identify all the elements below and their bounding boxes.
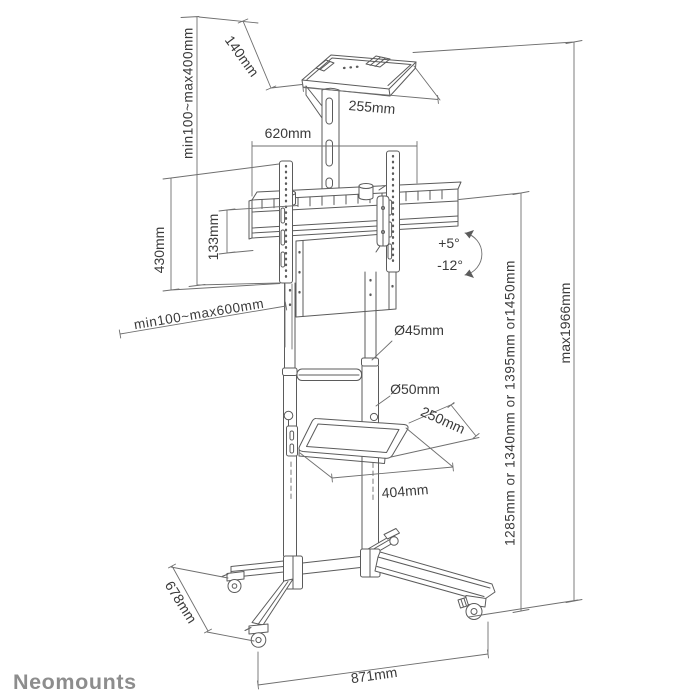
diagram-canvas: min100~max400mm 140mm 255mm 620mm 430mm … [0, 0, 700, 700]
dim-camera-shelf-height-range [181, 17, 280, 287]
label-tilt-up: +5° [438, 235, 460, 251]
caster-back-left [222, 572, 244, 593]
caster-front-left [245, 624, 268, 647]
label-base-width: 871mm [350, 664, 398, 686]
label-camera-shelf-height-range: min100~max400mm [181, 27, 196, 159]
tv-stand-dimension-diagram: min100~max400mm 140mm 255mm 620mm 430mm … [0, 0, 700, 700]
label-upper-pole-diameter: Ø45mm [394, 322, 444, 338]
top-camera-shelf [302, 55, 416, 96]
label-tilt-down: -12° [437, 257, 463, 273]
label-av-shelf-width: 404mm [381, 481, 429, 501]
leg-front-left [252, 579, 293, 625]
label-camera-shelf-depth: 140mm [222, 32, 262, 79]
label-camera-shelf-width: 255mm [348, 97, 396, 117]
leg-front-right [375, 552, 495, 601]
caster-front-right [458, 596, 486, 620]
dimension-labels: min100~max400mm 140mm 255mm 620mm 430mm … [133, 27, 573, 686]
label-crossbar-width: 620mm [265, 125, 312, 141]
tv-stand-drawing [222, 55, 495, 647]
label-mount-height-options: 1285mm or 1340mm or 1395mm or1450mm [503, 260, 518, 546]
tilt-arc-icon [465, 230, 482, 278]
crossbar-knob-right [359, 184, 373, 200]
dim-mount-height-options [459, 192, 529, 613]
label-crossbar-profile-height: 133mm [205, 214, 221, 261]
leader-upper-pole-diameter [372, 341, 392, 360]
label-vesa-width-range: min100~max600mm [133, 296, 265, 333]
upper-pole-left [285, 283, 296, 368]
label-base-depth: 678mm [162, 578, 200, 626]
shelf-hook-right [370, 413, 377, 420]
label-max-height: max1966mm [557, 283, 573, 364]
neomounts-logo: Neomounts [13, 670, 137, 694]
vesa-rail-left [280, 161, 293, 283]
label-vesa-bracket-height: 430mm [151, 227, 167, 274]
base-cross-strut [303, 557, 361, 575]
base-assembly [222, 529, 495, 648]
label-lower-pole-diameter: Ø50mm [390, 381, 440, 397]
caster-back-right [390, 537, 398, 545]
shelf-bracket-left [284, 411, 297, 456]
